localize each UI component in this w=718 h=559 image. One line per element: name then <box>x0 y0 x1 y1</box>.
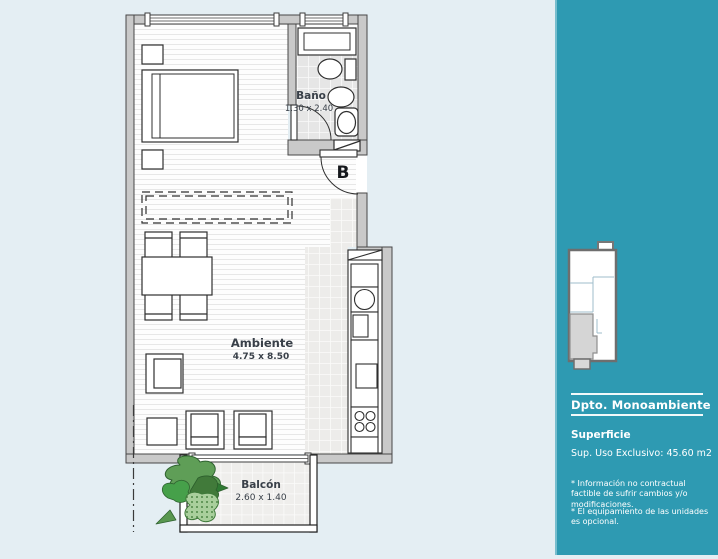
main-room-dimensions: 4.75 x 8.50 <box>233 352 289 362</box>
armchair-side <box>146 354 183 393</box>
cooktop <box>351 407 378 437</box>
divider <box>571 414 703 416</box>
window-post <box>145 13 150 26</box>
dining-table <box>142 257 212 295</box>
kitchen-tile-floor-upper <box>330 198 357 247</box>
double-bed <box>142 70 238 142</box>
footnote: * Información no contractual factible de… <box>571 479 717 510</box>
floor-plan: Baño 1.30 x 2.40 B Ambiente 4.75 x 8.50 … <box>0 0 555 555</box>
building-key-plan <box>567 241 623 371</box>
counter-cabinet <box>351 264 378 287</box>
footnote: * El equipamiento de las unidades es opc… <box>571 507 717 528</box>
dining-chair <box>145 294 172 320</box>
bidet <box>335 108 358 136</box>
side-table <box>147 418 177 445</box>
armchair <box>234 411 272 449</box>
nightstand <box>142 45 163 64</box>
counter-cabinet <box>351 437 378 453</box>
unit-title: Dpto. Monoambiente <box>571 398 711 412</box>
entry-door-label: B <box>337 163 350 183</box>
floor-plan-drawing: Baño 1.30 x 2.40 B Ambiente 4.75 x 8.50 … <box>0 0 555 555</box>
info-sidebar: Dpto. Monoambiente Superficie Sup. Uso E… <box>555 0 718 555</box>
divider <box>571 393 703 395</box>
window-post <box>300 13 305 26</box>
kitchen-tile-floor <box>305 247 348 455</box>
counter-drainer <box>348 250 382 260</box>
window-post <box>343 13 348 26</box>
bedroom-window <box>150 15 274 24</box>
bathroom-window <box>305 15 343 24</box>
armchair <box>186 411 224 449</box>
wall-bathroom-separator <box>288 24 296 105</box>
bathroom-dimensions: 1.30 x 2.40 <box>285 104 333 114</box>
dining-chair <box>180 294 207 320</box>
surface-heading: Superficie <box>571 429 631 441</box>
counter-module <box>351 312 378 340</box>
dining-chair <box>145 232 172 258</box>
balcony-label: Balcón <box>241 479 281 491</box>
wall-right-upper <box>358 15 367 155</box>
toilet <box>318 59 356 80</box>
wall-right-lower <box>382 247 392 463</box>
kitchen-sink <box>351 287 378 312</box>
balcony-dimensions: 2.60 x 1.40 <box>235 493 286 503</box>
main-room-label: Ambiente <box>231 336 294 350</box>
dining-chair <box>180 232 207 258</box>
fridge <box>351 340 378 407</box>
bathroom-label: Baño <box>296 90 326 102</box>
kitchen-counter <box>348 250 382 453</box>
surface-value: Sup. Uso Exclusivo: 45.60 m2 <box>571 448 712 459</box>
nightstand <box>142 150 163 169</box>
window-post <box>274 13 279 26</box>
bathroom-vanity <box>334 140 360 151</box>
keyplan-highlighted-unit <box>570 314 597 359</box>
keyplan-bottom-tab <box>574 359 590 369</box>
wall-left <box>126 15 134 462</box>
wall-below-entry <box>357 193 367 254</box>
shower-tray <box>298 28 356 55</box>
wall-bottom-right <box>308 454 392 463</box>
entry-threshold <box>356 155 367 193</box>
